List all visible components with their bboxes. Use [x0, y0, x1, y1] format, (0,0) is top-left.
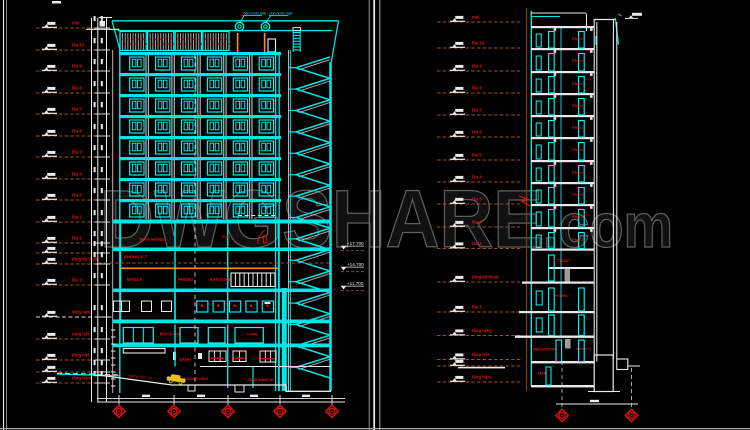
svg-text:tầng kỹ thuật: tầng kỹ thuật: [472, 275, 499, 280]
svg-text:lầu 4: lầu 4: [472, 175, 482, 180]
svg-text:lầu 2: lầu 2: [472, 220, 482, 225]
svg-text:XUỐNG HẦM: XUỐNG HẦM: [184, 376, 208, 381]
svg-text:lầu 1: lầu 1: [472, 241, 482, 246]
svg-text:K.THUẬT: K.THUẬT: [553, 258, 571, 263]
svg-text:P.NGỦ: P.NGỦ: [572, 58, 583, 63]
svg-text:P.NGỦ: P.NGỦ: [572, 147, 583, 152]
svg-text:lầu 6: lầu 6: [472, 130, 482, 135]
svg-text:HOTEL: HOTEL: [555, 293, 569, 298]
svg-text:KARAOKE: KARAOKE: [210, 277, 231, 282]
svg-text:tầng trệt: tầng trệt: [72, 353, 90, 358]
svg-text:lầu 1: lầu 1: [472, 305, 482, 310]
svg-text:bồn nước mái: bồn nước mái: [270, 12, 293, 16]
svg-text:bồn nước mái: bồn nước mái: [244, 12, 267, 16]
svg-text:lầu 1: lầu 1: [72, 236, 82, 241]
svg-text:TẦNG HẦM XE: TẦNG HẦM XE: [247, 378, 274, 382]
svg-text:PHÒNG K.T: PHÒNG K.T: [124, 255, 148, 260]
svg-text:lầu 5: lầu 5: [472, 153, 482, 158]
svg-text:NHÀ HÀNG: NHÀ HÀNG: [140, 236, 165, 242]
svg-text:lầu 7: lầu 7: [72, 107, 82, 112]
svg-text:lầu 5: lầu 5: [72, 150, 82, 155]
svg-text:lầu 7: lầu 7: [472, 108, 482, 113]
svg-text:P.NGỦ: P.NGỦ: [572, 125, 583, 130]
svg-text:tầng kỹ thuật: tầng kỹ thuật: [72, 257, 99, 262]
svg-text:CAFÉ: CAFÉ: [247, 332, 258, 337]
svg-text:tầng hầm: tầng hầm: [472, 375, 491, 380]
svg-text:lầu 8: lầu 8: [72, 86, 82, 91]
svg-text:lầu 4: lầu 4: [72, 172, 82, 177]
svg-text:lầu 10: lầu 10: [72, 43, 85, 48]
svg-text:RECEPTION: RECEPTION: [533, 347, 556, 352]
svg-text:mái: mái: [472, 15, 479, 20]
svg-text:lầu 9: lầu 9: [72, 64, 82, 69]
svg-text:lầu 9: lầu 9: [472, 64, 482, 69]
svg-text:P.NGỦ: P.NGỦ: [572, 237, 583, 242]
svg-text:ĐẠI SẢNH: ĐẠI SẢNH: [160, 332, 181, 337]
svg-text:P.NGỦ: P.NGỦ: [572, 192, 583, 197]
svg-text:MASSA: MASSA: [127, 277, 142, 282]
svg-text:+11.700: +11.700: [347, 281, 364, 286]
svg-text:tầng lửng: tầng lửng: [72, 310, 92, 315]
svg-text:lầu 2: lầu 2: [72, 215, 82, 220]
svg-text:lầu 3: lầu 3: [472, 197, 482, 202]
svg-text:P.NGỦ: P.NGỦ: [572, 214, 583, 219]
svg-text:PHÒNG: PHÒNG: [178, 277, 193, 282]
svg-text:lầu 10: lầu 10: [472, 41, 485, 46]
svg-text:tầng lửng: tầng lửng: [472, 328, 492, 333]
svg-text:lầu 6: lầu 6: [72, 129, 82, 134]
svg-text:mái: mái: [72, 21, 79, 26]
svg-text:lầu 3: lầu 3: [72, 193, 82, 198]
svg-text:BAR: BAR: [222, 234, 230, 239]
svg-text:+17.700: +17.700: [347, 241, 364, 246]
svg-text:lầu 8: lầu 8: [472, 86, 482, 91]
svg-text:tầng trệt: tầng trệt: [472, 352, 490, 357]
svg-text:P.NGỦ: P.NGỦ: [572, 81, 583, 86]
svg-text:tầng hầm: tầng hầm: [72, 376, 91, 381]
svg-text:P.NGỦ: P.NGỦ: [572, 36, 583, 41]
svg-text:P.NGỦ: P.NGỦ: [572, 103, 583, 108]
svg-text:P.NGỦ: P.NGỦ: [572, 170, 583, 175]
svg-text:tầng trệt: tầng trệt: [72, 332, 90, 337]
svg-text:lầu 1: lầu 1: [72, 278, 82, 283]
svg-text:SẢNH: SẢNH: [179, 357, 191, 362]
svg-text:+14.700: +14.700: [347, 262, 364, 267]
